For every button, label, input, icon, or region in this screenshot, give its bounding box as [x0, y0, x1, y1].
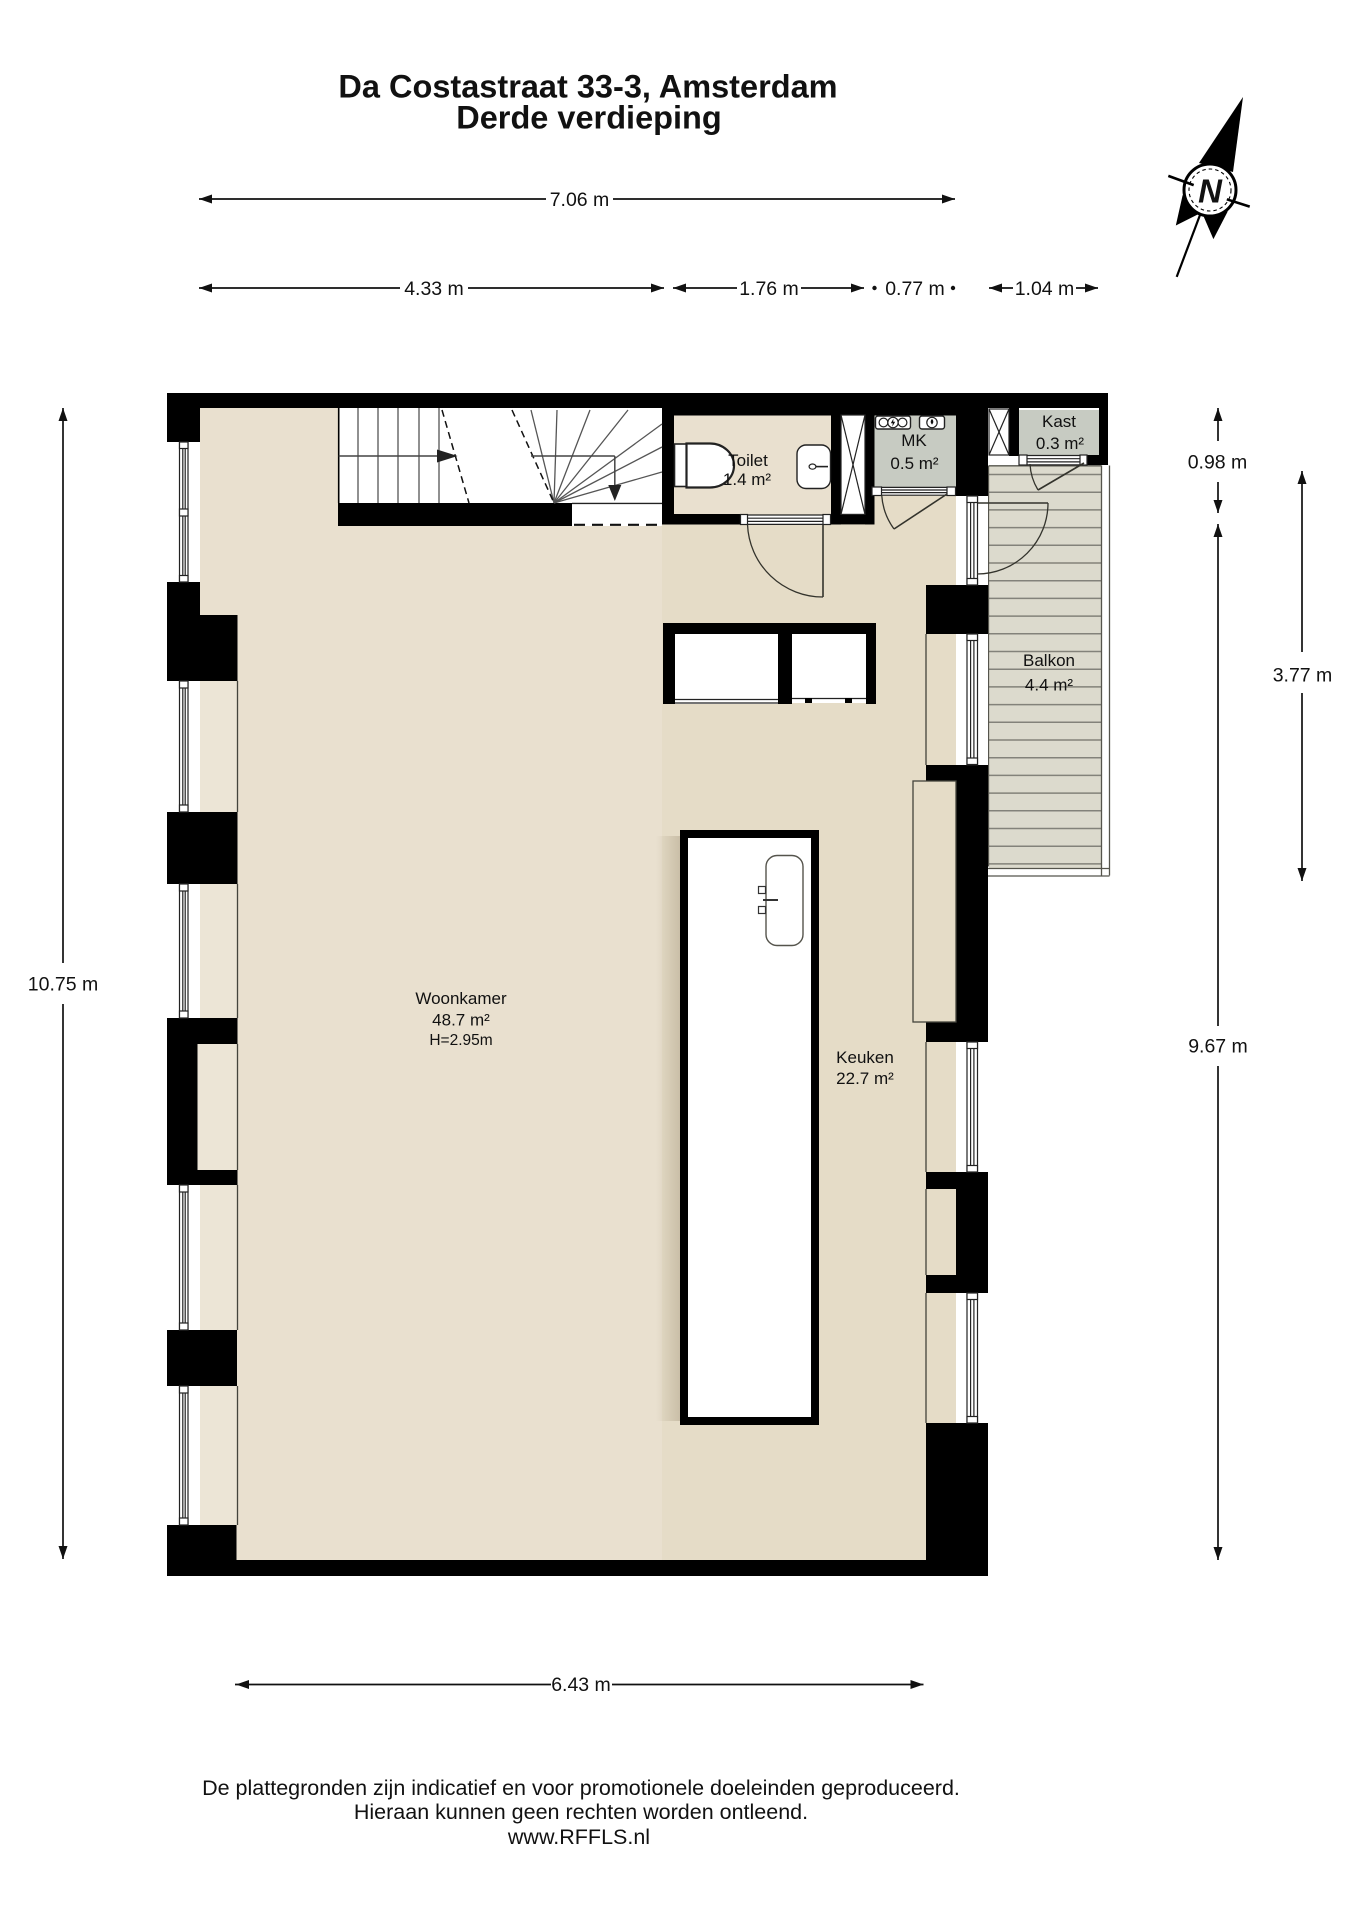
svg-text:10.75 m: 10.75 m: [28, 974, 98, 996]
svg-text:Woonkamer: Woonkamer: [415, 989, 507, 1008]
svg-text:Derde verdieping: Derde verdieping: [456, 100, 722, 136]
svg-text:H=2.95m: H=2.95m: [429, 1032, 492, 1049]
svg-text:0.5 m²: 0.5 m²: [890, 454, 939, 473]
svg-text:Balkon: Balkon: [1023, 651, 1075, 670]
svg-text:De plattegronden zijn indicati: De plattegronden zijn indicatief en voor…: [202, 1776, 960, 1800]
svg-text:6.43 m: 6.43 m: [551, 1674, 611, 1696]
svg-text:3.77 m: 3.77 m: [1273, 665, 1333, 687]
svg-text:1.4 m²: 1.4 m²: [723, 470, 772, 489]
svg-text:22.7 m²: 22.7 m²: [836, 1069, 894, 1088]
svg-text:Kast: Kast: [1042, 412, 1076, 431]
svg-text:N: N: [1198, 173, 1223, 210]
svg-text:4.33 m: 4.33 m: [404, 278, 464, 300]
svg-text:7.06 m: 7.06 m: [550, 189, 610, 211]
svg-text:0.3 m²: 0.3 m²: [1036, 434, 1085, 453]
svg-text:Toilet: Toilet: [728, 451, 768, 470]
svg-text:48.7 m²: 48.7 m²: [432, 1011, 490, 1030]
svg-text:4.4 m²: 4.4 m²: [1025, 676, 1074, 695]
svg-text:MK: MK: [901, 431, 927, 450]
svg-text:1.76 m: 1.76 m: [739, 278, 799, 300]
svg-text:www.RFFLS.nl: www.RFFLS.nl: [507, 1825, 650, 1849]
svg-text:9.67 m: 9.67 m: [1188, 1036, 1248, 1058]
svg-text:1.04 m: 1.04 m: [1015, 278, 1075, 300]
svg-text:Hieraan kunnen geen rechten wo: Hieraan kunnen geen rechten worden ontle…: [354, 1800, 808, 1824]
svg-text:0.77 m: 0.77 m: [885, 278, 945, 300]
svg-text:Keuken: Keuken: [836, 1048, 894, 1067]
svg-text:0.98 m: 0.98 m: [1188, 452, 1248, 474]
